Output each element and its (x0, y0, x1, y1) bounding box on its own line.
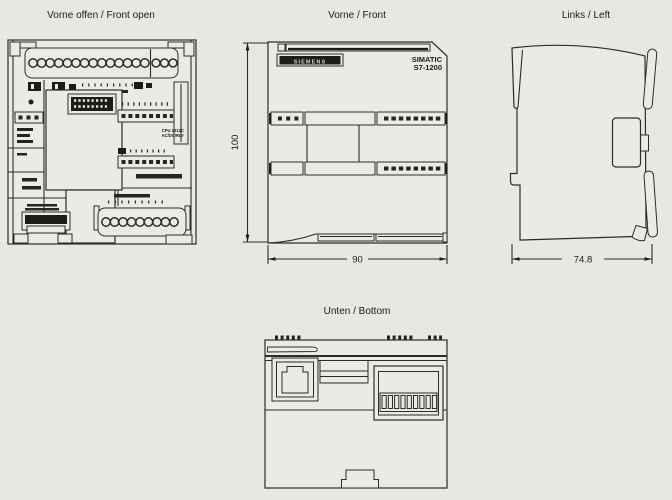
height-dim-label: 100 (230, 135, 241, 151)
upper-led-band (269, 112, 447, 125)
bottom-terminal-block (374, 366, 443, 420)
front-open-view: CPU 1212C AC/DC/RLY (6, 36, 198, 248)
rj45-jack (25, 215, 67, 224)
din-clip-tab (342, 470, 379, 488)
device-body (268, 42, 447, 243)
width-dimension: 90 (268, 245, 447, 266)
bottom-view (256, 300, 456, 500)
left-title: Links / Left (506, 10, 666, 21)
front-title: Vorne / Front (277, 10, 437, 21)
top-terminal-strip (25, 48, 178, 78)
brand-text: SIEMENS (294, 59, 326, 65)
width-dim-label: 90 (352, 255, 363, 266)
height-dimension: 100 (230, 43, 268, 242)
card-slot (320, 361, 368, 384)
left-side-view: 74.8 (500, 36, 672, 272)
lower-led-band (269, 162, 447, 175)
depth-dim-label: 74.8 (574, 255, 593, 266)
front-view: SIEMENS SIMATIC S7-1200 (228, 36, 456, 272)
depth-dimension: 74.8 (512, 244, 652, 266)
siemens-logo: SIEMENS (277, 54, 343, 66)
front-open-title: Vorne offen / Front open (21, 10, 181, 21)
plc-dimension-drawing: Vorne offen / Front open Vorne / Front L… (0, 0, 672, 500)
product-label: SIMATIC S7-1200 (412, 55, 443, 72)
cpu-variant-label: AC/DC/RLY (162, 133, 185, 138)
model-text: S7-1200 (414, 63, 442, 72)
pin-header (71, 97, 113, 111)
ethernet-port (272, 358, 318, 401)
